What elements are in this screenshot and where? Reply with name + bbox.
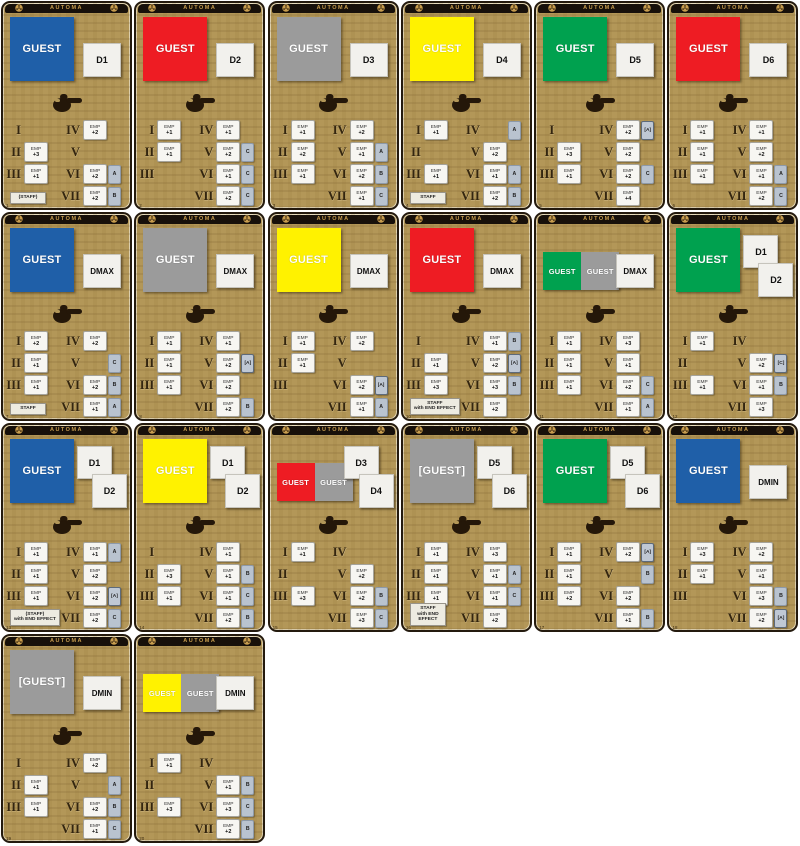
action-row: VIIEMP+2 <box>459 607 528 629</box>
emp-value: +1 <box>225 174 231 180</box>
action-row: IVEMP+2 <box>59 752 128 774</box>
emp-box: EMP+2 <box>749 142 773 162</box>
action-row: VEMP+2 <box>592 141 661 163</box>
emp-box: EMP+1 <box>424 542 448 562</box>
tag-box: C <box>241 165 254 184</box>
automa-card[interactable]: AUTOMAGUESTD1D2IIIEMP+3IIIEMP+1IVEMP+1VE… <box>134 423 265 632</box>
emp-box: EMP+1 <box>291 542 315 562</box>
emp-value: +2 <box>92 385 98 391</box>
automa-card[interactable]: AUTOMA[GUEST]DMINIIIEMP+1IIIEMP+1IVEMP+2… <box>1 634 132 843</box>
film-reel-icon <box>110 4 118 12</box>
roman-numeral: VI <box>459 378 480 393</box>
guest-zone: GUESTD4 <box>405 13 528 89</box>
emp-value: +3 <box>33 152 39 158</box>
rows-right-column: IVEMP+2[A]VBVIEMP+2VIIEMP+1B <box>592 541 661 629</box>
action-row: VEMP+1A <box>459 563 528 585</box>
emp-box: EMP+1 <box>690 331 714 351</box>
emp-box: EMP+2 <box>216 397 240 417</box>
action-row: VA <box>59 774 128 796</box>
action-row: IIEMP+1 <box>5 352 59 374</box>
emp-box: EMP+2 <box>350 331 374 351</box>
action-row: VEMP+1B <box>192 774 261 796</box>
guest-square: [GUEST] <box>10 650 74 714</box>
action-row: IIEMP+1 <box>5 774 59 796</box>
roman-numeral: VII <box>192 611 213 626</box>
card-header: AUTOMA <box>5 637 128 646</box>
action-row: IVEMP+2[A] <box>592 119 661 141</box>
roman-numeral: II <box>272 567 288 582</box>
card-header: AUTOMA <box>538 426 661 435</box>
emp-value: +2 <box>625 385 631 391</box>
emp-value: +1 <box>433 174 439 180</box>
film-reel-icon <box>643 426 651 434</box>
emp-value: +1 <box>166 363 172 369</box>
staff-box: STAFF <box>410 192 446 204</box>
automa-card[interactable]: AUTOMAGUESTDMAXIIIEMP+1IIIEMP+3IVEMP+1BV… <box>401 212 532 421</box>
hand-row <box>3 300 130 326</box>
emp-value: +2 <box>92 807 98 813</box>
emp-box: EMP+1 <box>216 564 240 584</box>
emp-value: +1 <box>358 196 364 202</box>
action-row: IEMP+1 <box>5 541 59 563</box>
film-reel-icon <box>15 4 23 12</box>
die-box: D3 <box>350 43 388 77</box>
emp-box: EMP+2 <box>350 375 374 395</box>
card-header: AUTOMA <box>272 426 395 435</box>
film-reel-icon <box>148 426 156 434</box>
automa-card[interactable]: AUTOMAGUESTD1IIIEMP+3IIIEMP+1IVEMP+2VVIE… <box>1 1 132 210</box>
emp-value: +1 <box>299 552 305 558</box>
action-row: IIEMP+1 <box>538 352 592 374</box>
roman-numeral: VII <box>326 611 347 626</box>
rows-left-column: IEMP+1IIIIIEMP+1 <box>671 330 725 418</box>
action-row: VIEMP+2A <box>59 163 128 185</box>
guest-zone: GUESTD5 <box>538 13 661 89</box>
action-row: VIEMP+2C <box>592 374 661 396</box>
emp-box: EMP+1 <box>557 542 581 562</box>
emp-box: EMP+2 <box>749 542 773 562</box>
emp-box: EMP+2 <box>83 186 107 206</box>
roman-numeral: VI <box>459 167 480 182</box>
automa-card[interactable]: AUTOMAGUESTGUESTDMAXIEMP+1IIEMP+1IIIEMP+… <box>534 212 665 421</box>
rows-right-column: IVEMP+1BVEMP+2[A]VIEMP+3BVIIEMP+2 <box>459 330 528 418</box>
action-row: I <box>538 119 592 141</box>
emp-box: EMP+1 <box>350 186 374 206</box>
emp-box: EMP+3 <box>483 542 507 562</box>
tag-box: [A] <box>641 121 654 140</box>
emp-value: +1 <box>358 407 364 413</box>
card-number: 12 <box>672 414 677 419</box>
emp-value: +1 <box>33 596 39 602</box>
roman-numeral: IV <box>459 334 480 349</box>
emp-value: +1 <box>299 174 305 180</box>
emp-value: +2 <box>566 596 572 602</box>
rows-right-column: IVEMP+1VEMP+2CVIEMP+1CVIIEMP+2C <box>192 119 261 207</box>
action-row: IVEMP+1B <box>459 330 528 352</box>
action-row: II <box>405 141 459 163</box>
emp-value: +2 <box>758 552 764 558</box>
roman-numeral: V <box>725 567 746 582</box>
roman-numeral: I <box>5 756 21 771</box>
roman-numeral: I <box>5 123 21 138</box>
tag-box: A <box>774 165 787 184</box>
roman-numeral: VII <box>192 400 213 415</box>
staff-box: STAFFwith ENDEFFECT <box>410 603 446 626</box>
die-box: D4 <box>483 43 521 77</box>
emp-value: +1 <box>225 596 231 602</box>
emp-box: EMP+1 <box>350 397 374 417</box>
emp-value: +1 <box>566 174 572 180</box>
emp-box: EMP+1 <box>291 331 315 351</box>
film-reel-icon <box>282 4 290 12</box>
emp-value: +1 <box>699 174 705 180</box>
card-header: AUTOMA <box>405 215 528 224</box>
tag-box: C <box>241 143 254 162</box>
roman-numeral: II <box>138 145 154 160</box>
action-row: IEMP+1 <box>405 541 459 563</box>
emp-box: EMP+2 <box>83 331 107 351</box>
card-grid: AUTOMAGUESTD1IIIEMP+3IIIEMP+1IVEMP+2VVIE… <box>0 0 800 844</box>
roman-numeral: III <box>272 167 288 182</box>
roman-numeral: III <box>405 167 421 182</box>
emp-box: EMP+1 <box>350 142 374 162</box>
tag-box: C <box>241 187 254 206</box>
emp-box: EMP+3 <box>291 586 315 606</box>
pointing-hand-icon <box>583 514 617 535</box>
tag-box: B <box>774 587 787 606</box>
emp-box: EMP+1 <box>24 564 48 584</box>
automa-card[interactable]: AUTOMAGUESTDMAXIEMP+1IIEMP+1IIIIVEMP+2VV… <box>268 212 399 421</box>
emp-value: +3 <box>699 552 705 558</box>
automa-card[interactable]: AUTOMAGUESTD5IIIEMP+3IIIEMP+1IVEMP+2[A]V… <box>534 1 665 210</box>
action-row: VIIEMP+2B <box>192 607 261 629</box>
emp-value: +1 <box>699 341 705 347</box>
guest-square: GUEST <box>543 439 607 503</box>
emp-value: +1 <box>33 807 39 813</box>
roman-numeral: V <box>326 356 347 371</box>
tag-box: A <box>375 143 388 162</box>
action-row: VIIEMP+1A <box>592 396 661 418</box>
emp-box: EMP+1 <box>557 353 581 373</box>
emp-box: EMP+1 <box>24 775 48 795</box>
emp-value: +2 <box>625 130 631 136</box>
film-reel-icon <box>148 4 156 12</box>
action-rows: IEMP+1IIEMP+1IIIEMP+1IVEMP+1VEMP+2[A]VIE… <box>138 330 261 418</box>
guest-zone: GUESTDMAX <box>272 224 395 300</box>
emp-value: +3 <box>758 407 764 413</box>
staff-box: (STAFF) <box>10 192 46 204</box>
emp-value: +1 <box>33 363 39 369</box>
emp-box: EMP+1 <box>424 564 448 584</box>
film-reel-icon <box>415 4 423 12</box>
guest-square: GUEST <box>676 439 740 503</box>
roman-numeral: II <box>272 145 288 160</box>
tag-box: A <box>508 165 521 184</box>
emp-box: EMP+1 <box>749 564 773 584</box>
emp-value: +2 <box>625 596 631 602</box>
guest-square: GUEST <box>543 17 607 81</box>
roman-numeral: VII <box>725 400 746 415</box>
action-row: IVEMP+2[A] <box>592 541 661 563</box>
guest-square: GUEST <box>676 17 740 81</box>
automa-card[interactable]: AUTOMAGUESTGUESTDMINIEMP+1IIIIIEMP+3IVVE… <box>134 634 265 843</box>
card-header: AUTOMA <box>405 4 528 13</box>
action-row: VIIEMP+4 <box>592 185 661 207</box>
roman-numeral: IV <box>326 334 347 349</box>
guest-zone: GUESTD1D2 <box>138 435 261 511</box>
rows-left-column: IIIEMP+1IIIEMP+1 <box>5 752 59 840</box>
roman-numeral: VI <box>326 378 347 393</box>
roman-numeral: II <box>538 567 554 582</box>
roman-numeral: V <box>192 778 213 793</box>
automa-card[interactable]: AUTOMAGUESTDMINIEMP+3IIEMP+1IIIIVEMP+2VE… <box>667 423 798 632</box>
emp-box: EMP+1 <box>24 797 48 817</box>
card-header: AUTOMA <box>538 4 661 13</box>
action-row: VIEMP+1C <box>192 585 261 607</box>
emp-value: +1 <box>33 785 39 791</box>
action-row: VB <box>592 563 661 585</box>
pointing-hand-icon <box>316 514 350 535</box>
rows-left-column: IEMP+1IIEMP+1IIIEMP+2 <box>538 541 592 629</box>
roman-numeral: VI <box>59 589 80 604</box>
action-row: IVEMP+2 <box>725 541 794 563</box>
tag-box: [A] <box>508 354 521 373</box>
roman-numeral: III <box>272 378 288 393</box>
tag-box: B <box>241 820 254 839</box>
action-rows: IIIEMP+3IIIEMP+1IVEMP+1VEMP+1BVIEMP+1CVI… <box>138 541 261 629</box>
emp-value: +1 <box>92 829 98 835</box>
roman-numeral: III <box>538 378 554 393</box>
emp-box: EMP+1 <box>24 164 48 184</box>
emp-box: EMP+3 <box>157 564 181 584</box>
card-number: 10 <box>406 414 411 419</box>
action-rows: IEMP+1IIIIIEMP+3IVVEMP+1BVIEMP+3CVIIEMP+… <box>138 752 261 840</box>
emp-value: +2 <box>492 363 498 369</box>
hand-row <box>3 722 130 748</box>
emp-box: EMP+1 <box>157 375 181 395</box>
rows-right-column: IVAVEMP+2VIEMP+1AVIIEMP+2B <box>459 119 528 207</box>
guest-zone: GUESTD3 <box>272 13 395 89</box>
film-reel-icon <box>643 215 651 223</box>
film-reel-icon <box>548 215 556 223</box>
action-row: VIIEMP+2C <box>725 185 794 207</box>
card-header: AUTOMA <box>138 426 261 435</box>
hand-row <box>536 300 663 326</box>
rows-left-column: IIIEMP+3IIIEMP+1 <box>138 541 192 629</box>
roman-numeral: II <box>538 145 554 160</box>
action-row: IEMP+1 <box>671 330 725 352</box>
action-row: VIIEMP+1A <box>326 396 395 418</box>
film-reel-icon <box>776 426 784 434</box>
emp-value: +2 <box>299 152 305 158</box>
emp-value: +3 <box>492 552 498 558</box>
tag-box: A <box>375 398 388 417</box>
action-row: VEMP+2 <box>59 563 128 585</box>
roman-numeral: V <box>59 356 80 371</box>
pointing-hand-icon <box>583 303 617 324</box>
action-rows: IEMP+1IIEMP+1IIIIVEMP+1VEMP+2CVIEMP+1CVI… <box>138 119 261 207</box>
action-row: VIEMP+2C <box>592 163 661 185</box>
rows-left-column: IEMP+1IIEMP+1IIIEMP+1 <box>671 119 725 207</box>
film-reel-icon <box>548 426 556 434</box>
action-row: IVA <box>459 119 528 141</box>
action-row: IIIEMP+1 <box>5 796 59 818</box>
emp-value: +1 <box>166 152 172 158</box>
emp-box: EMP+1 <box>483 586 507 606</box>
film-reel-icon <box>643 4 651 12</box>
emp-box: EMP+1 <box>157 331 181 351</box>
film-reel-icon <box>282 215 290 223</box>
action-row: IIEMP+1 <box>138 352 192 374</box>
guest-square: GUEST <box>10 439 74 503</box>
action-row: VIIEMP+2B <box>459 185 528 207</box>
emp-box: EMP+2 <box>83 753 107 773</box>
action-row: I <box>405 330 459 352</box>
guest-square: GUEST <box>277 17 341 81</box>
roman-numeral: IV <box>326 123 347 138</box>
emp-value: +2 <box>92 763 98 769</box>
card-number: 6 <box>672 203 675 208</box>
roman-numeral: VI <box>59 167 80 182</box>
tag-box: A <box>108 543 121 562</box>
emp-value: +1 <box>92 407 98 413</box>
emp-value: +1 <box>33 552 39 558</box>
film-reel-icon <box>681 426 689 434</box>
rows-right-column: IVVEMP+1BVIEMP+3CVIIEMP+2B <box>192 752 261 840</box>
action-row: IIIEMP+1 <box>5 374 59 396</box>
action-rows: IEMP+1IIEMP+2IIIEMP+1IVEMP+2VEMP+1AVIEMP… <box>272 119 395 207</box>
emp-value: +2 <box>358 385 364 391</box>
guest-square: GUEST <box>543 252 581 290</box>
automa-card[interactable]: AUTOMAGUESTDMAXIEMP+1IIEMP+1IIIEMP+1IVEM… <box>134 212 265 421</box>
tag-box: C <box>241 587 254 606</box>
roman-numeral: V <box>192 567 213 582</box>
roman-numeral: IV <box>725 545 746 560</box>
automa-card[interactable]: AUTOMAGUESTD3IEMP+1IIEMP+2IIIEMP+1IVEMP+… <box>268 1 399 210</box>
emp-box: EMP+2 <box>483 608 507 628</box>
roman-numeral: I <box>138 545 154 560</box>
roman-numeral: III <box>5 800 21 815</box>
roman-numeral: I <box>138 334 154 349</box>
emp-box: EMP+2 <box>216 375 240 395</box>
card-number: 8 <box>139 414 142 419</box>
emp-box: EMP+3 <box>350 608 374 628</box>
automa-card[interactable]: AUTOMAGUESTD1D2IEMP+1IIIIIEMP+1IVVEMP+2[… <box>667 212 798 421</box>
emp-value: +3 <box>166 807 172 813</box>
action-row: VIEMP+1C <box>192 163 261 185</box>
action-row: VIIEMP+3 <box>725 396 794 418</box>
emp-box: EMP+3 <box>690 542 714 562</box>
emp-box: EMP+2 <box>83 797 107 817</box>
action-row: II <box>138 774 192 796</box>
staff-line: (STAFF) <box>14 195 42 201</box>
tag-box: [A] <box>774 609 787 628</box>
emp-box: EMP+2 <box>83 564 107 584</box>
card-header: AUTOMA <box>671 426 794 435</box>
action-row: VIIEMP+2B <box>192 396 261 418</box>
roman-numeral: V <box>459 145 480 160</box>
emp-box: EMP+2 <box>83 375 107 395</box>
die-box: DMAX <box>350 254 388 288</box>
rows-right-column: IVEMP+3VEMP+1VIEMP+2CVIIEMP+1A <box>592 330 661 418</box>
action-row: VIIEMP+3C <box>326 607 395 629</box>
emp-box: EMP+1 <box>24 542 48 562</box>
film-reel-icon <box>510 4 518 12</box>
emp-value: +1 <box>699 152 705 158</box>
automa-card[interactable]: AUTOMA[GUEST]D5D6IEMP+1IIEMP+1IIIEMP+1IV… <box>401 423 532 632</box>
emp-box: EMP+2 <box>350 120 374 140</box>
hand-row <box>403 89 530 115</box>
roman-numeral: I <box>138 123 154 138</box>
roman-numeral: I <box>538 334 554 349</box>
emp-box: EMP+3 <box>157 797 181 817</box>
automa-card[interactable]: AUTOMAGUESTDMAXIEMP+2IIEMP+1IIIEMP+1IVEM… <box>1 212 132 421</box>
action-rows: IEMP+1IIIIIEMP+3IVVEMP+2VIEMP+2BVIIEMP+3… <box>272 541 395 629</box>
hand-row <box>669 89 796 115</box>
rows-right-column: IVEMP+2[A]VEMP+2VIEMP+2CVIIEMP+4 <box>592 119 661 207</box>
action-row: IVEMP+1 <box>192 541 261 563</box>
roman-numeral: IV <box>192 334 213 349</box>
roman-numeral: I <box>272 123 288 138</box>
emp-value: +3 <box>625 341 631 347</box>
pointing-hand-icon <box>316 303 350 324</box>
guest-square: GUEST <box>181 674 219 712</box>
emp-value: +1 <box>758 385 764 391</box>
automa-card[interactable]: AUTOMAGUESTD4IEMP+1IIIIIEMP+1IVAVEMP+2VI… <box>401 1 532 210</box>
tag-box: C <box>108 354 121 373</box>
tag-box: C <box>641 376 654 395</box>
roman-numeral: VII <box>59 611 80 626</box>
action-row: VIIEMP+1C <box>59 818 128 840</box>
die-box: D2 <box>758 263 793 297</box>
action-row: V <box>59 141 128 163</box>
roman-numeral: IV <box>192 123 213 138</box>
emp-value: +1 <box>758 574 764 580</box>
emp-value: +3 <box>166 574 172 580</box>
rows-left-column: IIIEMP+3IIIEMP+1 <box>538 119 592 207</box>
roman-numeral: III <box>5 378 21 393</box>
action-row: IVEMP+1 <box>192 330 261 352</box>
card-header: AUTOMA <box>138 215 261 224</box>
emp-value: +2 <box>358 574 364 580</box>
automa-card[interactable]: AUTOMAGUESTD6IEMP+1IIEMP+1IIIEMP+1IVEMP+… <box>667 1 798 210</box>
staff-line: with END EFFECT <box>414 406 456 412</box>
emp-box: EMP+1 <box>424 353 448 373</box>
card-header: AUTOMA <box>671 215 794 224</box>
emp-value: +1 <box>166 130 172 136</box>
emp-box: EMP+2 <box>483 353 507 373</box>
emp-value: +2 <box>225 407 231 413</box>
emp-box: EMP+1 <box>157 753 181 773</box>
roman-numeral: I <box>405 545 421 560</box>
emp-box: EMP+2 <box>291 142 315 162</box>
guest-square: GUEST <box>143 674 181 712</box>
tag-box: A <box>508 565 521 584</box>
action-row: IVEMP+2 <box>326 330 395 352</box>
tag-box: A <box>108 776 121 795</box>
roman-numeral: VI <box>192 378 213 393</box>
automa-card[interactable]: AUTOMAGUESTD1D2IEMP+1IIEMP+1IIIEMP+1IVEM… <box>1 423 132 632</box>
emp-box: EMP+1 <box>157 586 181 606</box>
automa-card[interactable]: AUTOMAGUESTD5D6IEMP+1IIEMP+1IIIEMP+2IVEM… <box>534 423 665 632</box>
action-row: IVEMP+2 <box>59 119 128 141</box>
emp-box: EMP+2 <box>350 164 374 184</box>
action-row: IIIEMP+1 <box>5 585 59 607</box>
automa-card[interactable]: AUTOMAGUESTD2IEMP+1IIEMP+1IIIIVEMP+1VEMP… <box>134 1 265 210</box>
action-row: IIEMP+1 <box>405 352 459 374</box>
automa-card[interactable]: AUTOMAGUESTGUESTD3D4IEMP+1IIIIIEMP+3IVVE… <box>268 423 399 632</box>
emp-value: +4 <box>625 196 631 202</box>
